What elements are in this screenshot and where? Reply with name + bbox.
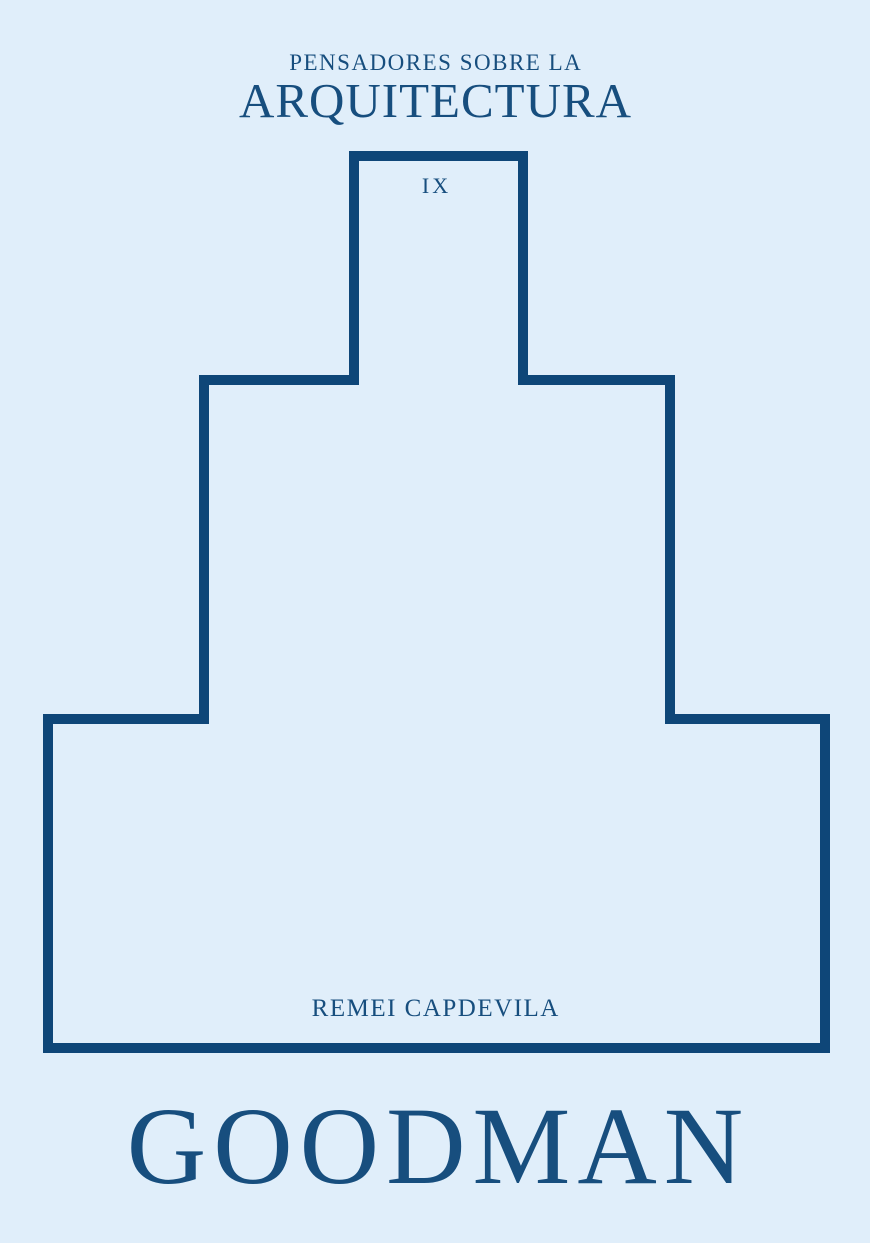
book-cover: PENSADORES SOBRE LA ARQUITECTURA IX REME… [0, 0, 870, 1243]
series-title: ARQUITECTURA [0, 76, 870, 125]
stepped-outline-path [48, 156, 825, 1048]
author-name: REMEI CAPDEVILA [0, 996, 870, 1021]
volume-number: IX [0, 175, 870, 197]
book-title: GOODMAN [0, 1091, 870, 1201]
series-label: PENSADORES SOBRE LA [0, 51, 870, 74]
